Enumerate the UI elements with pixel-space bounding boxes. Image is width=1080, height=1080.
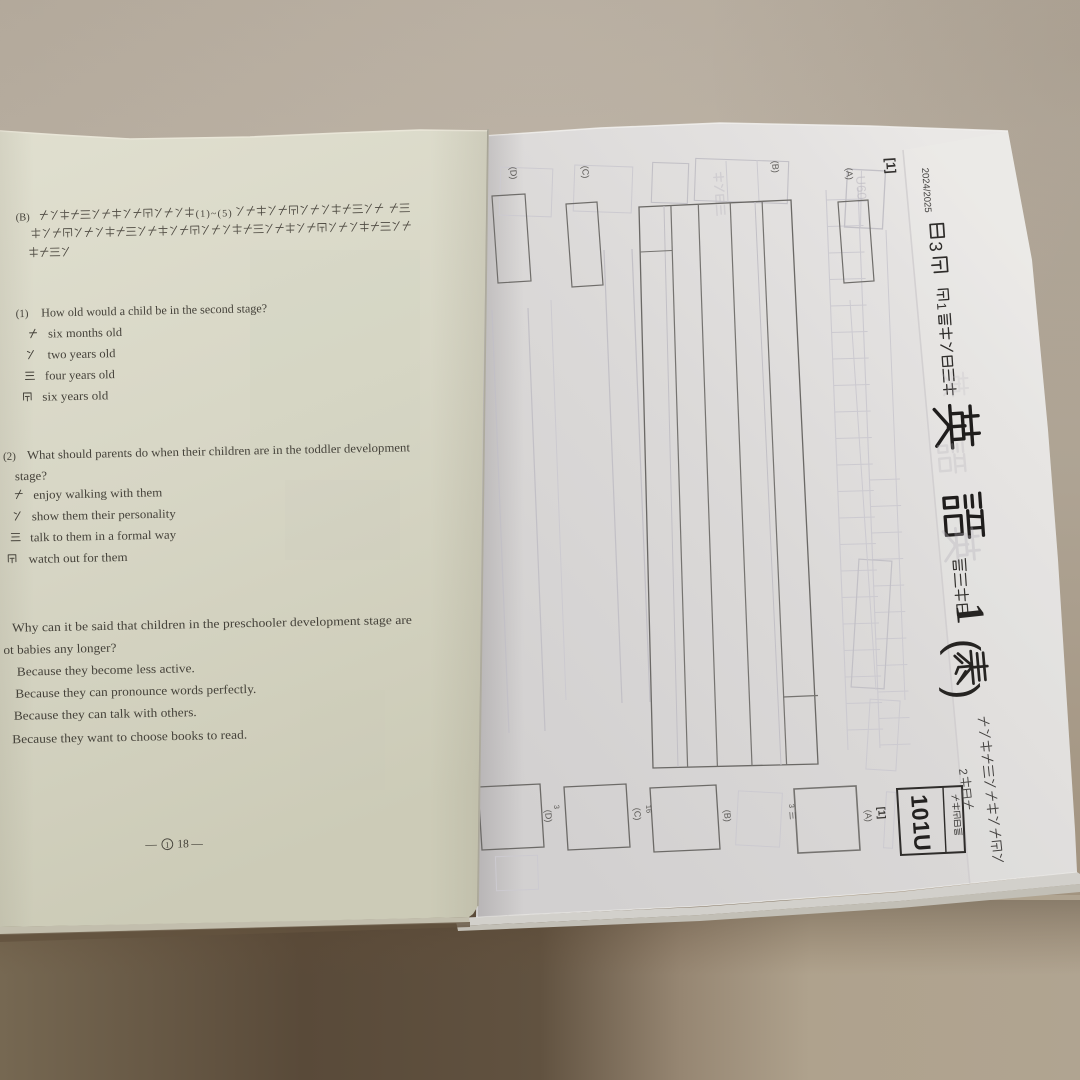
svg-text:3: 3: [925, 241, 946, 252]
svg-text:(A): (A): [844, 167, 855, 180]
svg-text:1: 1: [934, 302, 949, 310]
svg-text:—: —: [190, 838, 203, 850]
svg-text:[1]: [1]: [883, 157, 899, 174]
svg-text:six years old: six years old: [42, 388, 108, 403]
svg-text:2: 2: [956, 768, 969, 776]
svg-text:(D): (D): [543, 809, 554, 822]
svg-text:talk to them in a formal way: talk to them in a formal way: [30, 527, 176, 544]
svg-text:101U: 101U: [906, 794, 936, 853]
svg-text:(B): (B): [16, 212, 31, 223]
svg-text:(A): (A): [863, 809, 874, 822]
svg-text:(1): (1): [16, 308, 29, 320]
svg-text:3: 3: [552, 805, 561, 810]
svg-text:four years old: four years old: [45, 367, 115, 382]
svg-text:stage?: stage?: [15, 469, 47, 484]
svg-text:two years old: two years old: [47, 346, 115, 361]
svg-text:six months old: six months old: [48, 325, 122, 340]
svg-text:(C): (C): [580, 165, 591, 178]
svg-text:ot babies any longer?: ot babies any longer?: [3, 641, 116, 657]
svg-text:(B): (B): [770, 160, 781, 173]
svg-text:show them their personality: show them their personality: [32, 506, 176, 523]
svg-text:U60I: U60I: [853, 175, 870, 203]
svg-text:(1)~(5): (1)~(5): [196, 208, 232, 220]
svg-text:[1]: [1]: [875, 806, 887, 819]
svg-text:(B): (B): [722, 809, 733, 822]
svg-text:1: 1: [165, 840, 169, 850]
svg-text:16: 16: [644, 805, 654, 814]
svg-text:18: 18: [177, 838, 189, 850]
svg-text:enjoy walking with them: enjoy walking with them: [33, 485, 163, 502]
svg-text:—: —: [144, 839, 157, 851]
svg-text:(C): (C): [632, 807, 643, 820]
svg-text:3: 3: [787, 804, 796, 809]
svg-text:(D): (D): [508, 166, 519, 179]
svg-text:watch out for them: watch out for them: [28, 550, 128, 566]
svg-text:(2): (2): [3, 451, 16, 463]
